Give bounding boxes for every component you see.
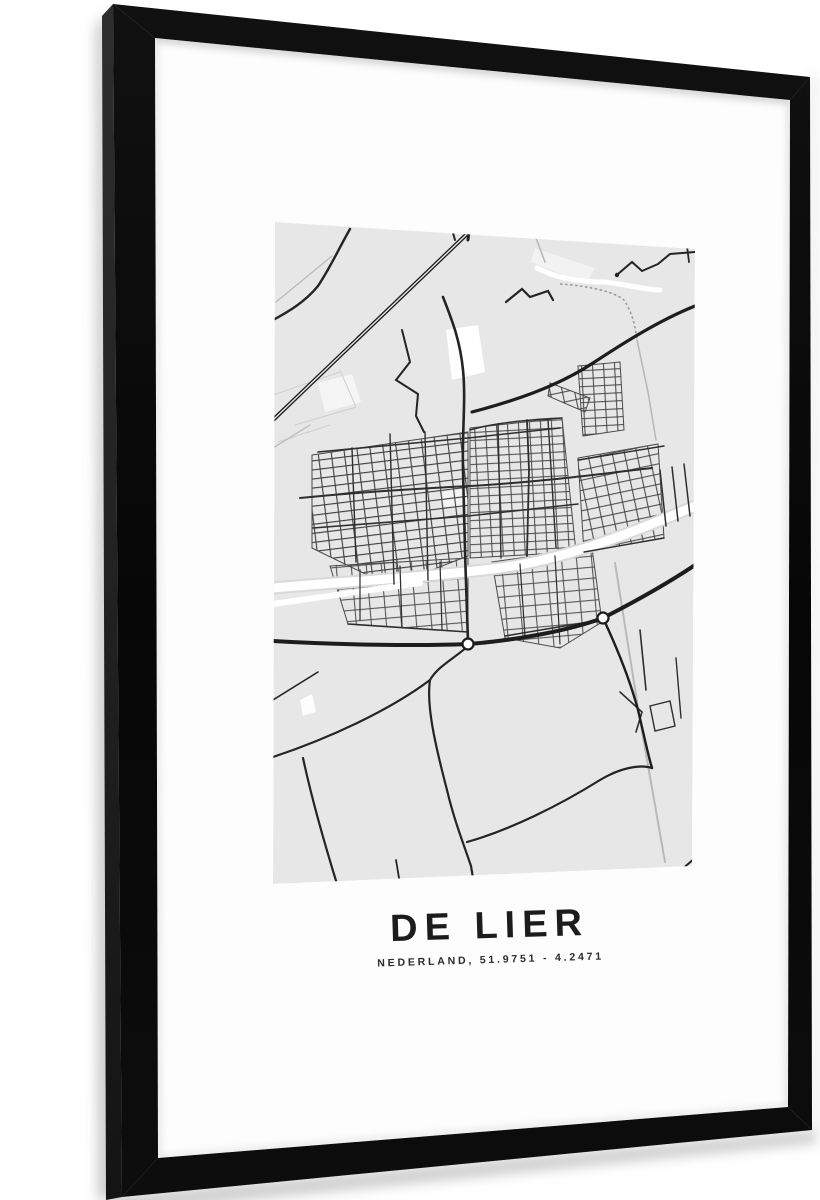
road-end-dot: [615, 273, 619, 277]
product-photo: DE LIER NEDERLAND, 51.9751 - 4.2471: [0, 0, 820, 1200]
poster-title: DE LIER: [389, 902, 589, 950]
framed-map-poster: DE LIER NEDERLAND, 51.9751 - 4.2471: [0, 0, 820, 1200]
roundabout-east: [598, 613, 609, 624]
map-print: [273, 222, 695, 884]
roundabout-west: [463, 639, 474, 650]
poster-caption: DE LIER NEDERLAND, 51.9751 - 4.2471: [376, 901, 605, 969]
